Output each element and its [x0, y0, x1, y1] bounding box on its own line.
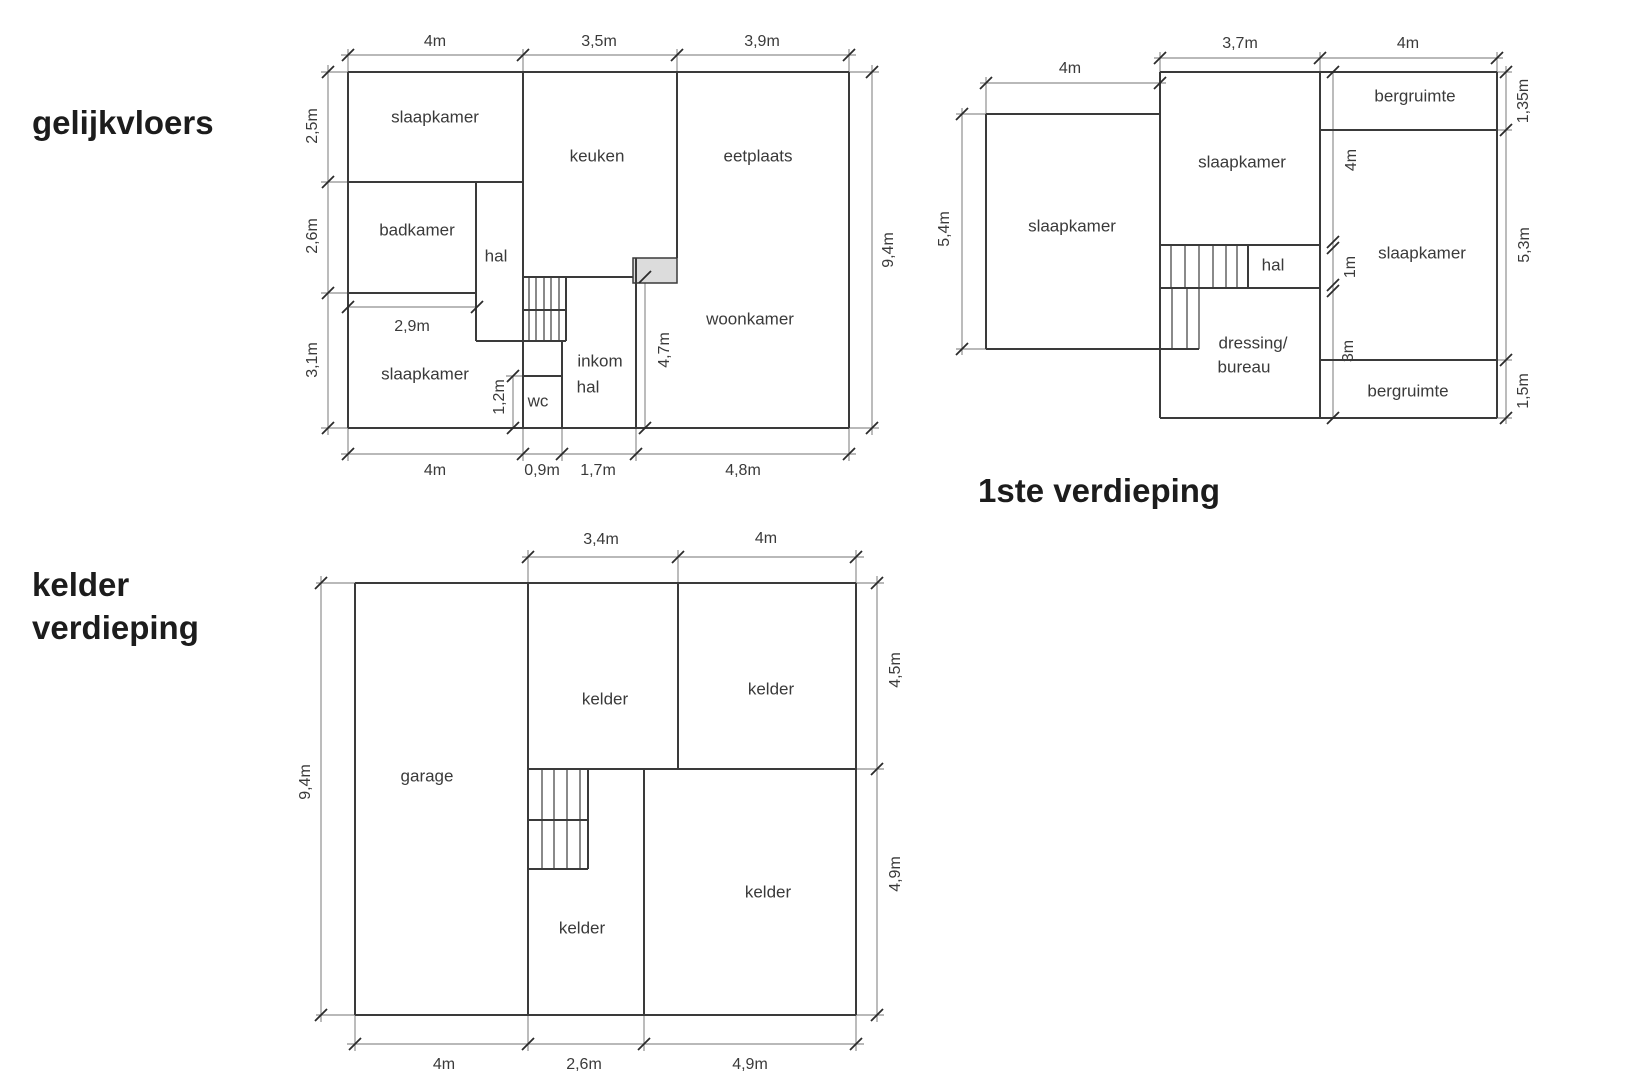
- dimension-label: 4m: [755, 530, 777, 547]
- dimension-label: 0,9m: [524, 462, 560, 479]
- door-opening-box: [633, 258, 677, 283]
- room-label: kelder: [745, 882, 792, 901]
- floorplan-gelijkvloers: 4m3,5m3,9m4m0,9m1,7m4,8m2,5m2,6m3,1m9,4m…: [304, 33, 897, 479]
- dimension-label: 4,7m: [656, 332, 673, 368]
- room-label: wc: [527, 391, 549, 410]
- dimension-label: 2,5m: [304, 108, 321, 144]
- dimension-label: 4m: [424, 33, 446, 50]
- room-label: slaapkamer: [1378, 243, 1466, 262]
- dimension-label: 1,7m: [580, 462, 616, 479]
- room-label: hal: [485, 246, 508, 265]
- dimension-label: 1,5m: [1515, 373, 1532, 409]
- dimension-label: 9,4m: [880, 232, 897, 268]
- dimension-label: 4m: [433, 1056, 455, 1073]
- dimension-label: 1,35m: [1515, 79, 1532, 123]
- dimension-label: 2,6m: [304, 218, 321, 254]
- dimension-label: 4m: [424, 462, 446, 479]
- room-label: woonkamer: [705, 309, 794, 328]
- dimension-label: 4,9m: [732, 1056, 768, 1073]
- room-label: bergruimte: [1367, 381, 1448, 400]
- floor-title-kelder-line2: verdieping: [32, 606, 199, 649]
- room-label: dressing/: [1219, 333, 1288, 352]
- dimension-label: 4,8m: [725, 462, 761, 479]
- dimension-label: 3,7m: [1222, 35, 1258, 52]
- dimension-label: 1m: [1342, 256, 1359, 278]
- floorplan-eerste-verdieping: 4m3,7m4m5,4m1,35m5,3m1,5m4m1m3mslaapkame…: [936, 35, 1533, 424]
- room-label: inkom: [577, 351, 622, 370]
- dimension-label: 5,3m: [1516, 227, 1533, 263]
- dimension-label: 3,5m: [581, 33, 617, 50]
- room-label: eetplaats: [724, 146, 793, 165]
- room-label: kelder: [748, 679, 795, 698]
- floor-title-kelder-verdieping: kelder verdieping: [32, 563, 199, 649]
- floorplan-kelder-verdieping: 3,4m4m9,4m4,5m4,9m4m2,6m4,9mgaragekelder…: [297, 530, 904, 1073]
- dimension-label: 3,4m: [583, 531, 619, 548]
- room-label: keuken: [570, 146, 625, 165]
- room-label: kelder: [582, 689, 629, 708]
- floor-title-kelder-line1: kelder: [32, 563, 199, 606]
- room-label: bergruimte: [1374, 86, 1455, 105]
- room-label: hal: [577, 377, 600, 396]
- dimension-label: 4,5m: [887, 652, 904, 688]
- room-label: slaapkamer: [381, 364, 469, 383]
- room-label: garage: [401, 766, 454, 785]
- floorplan-sheet: 4m3,5m3,9m4m0,9m1,7m4,8m2,5m2,6m3,1m9,4m…: [0, 0, 1634, 1080]
- dimension-label: 4m: [1059, 60, 1081, 77]
- dimension-label: 1,2m: [491, 379, 508, 415]
- room-label: slaapkamer: [391, 107, 479, 126]
- dimension-label: 4m: [1343, 149, 1360, 171]
- floor-title-gelijkvloers: gelijkvloers: [32, 101, 214, 144]
- dimension-label: 2,6m: [566, 1056, 602, 1073]
- dimension-label: 4m: [1397, 35, 1419, 52]
- dimension-label: 9,4m: [297, 764, 314, 800]
- floor-title-1ste-verdieping: 1ste verdieping: [978, 469, 1220, 512]
- room-label: badkamer: [379, 220, 455, 239]
- dimension-label: 2,9m: [394, 318, 430, 335]
- room-label: slaapkamer: [1028, 216, 1116, 235]
- room-label: kelder: [559, 918, 606, 937]
- dimension-label: 3,1m: [304, 342, 321, 378]
- dimension-label: 5,4m: [936, 211, 953, 247]
- floorplan-drawing: 4m3,5m3,9m4m0,9m1,7m4,8m2,5m2,6m3,1m9,4m…: [0, 0, 1634, 1080]
- dimension-label: 4,9m: [887, 856, 904, 892]
- room-label: hal: [1262, 255, 1285, 274]
- room-label: bureau: [1218, 357, 1271, 376]
- dimension-label: 3m: [1340, 340, 1357, 362]
- room-label: slaapkamer: [1198, 152, 1286, 171]
- dimension-label: 3,9m: [744, 33, 780, 50]
